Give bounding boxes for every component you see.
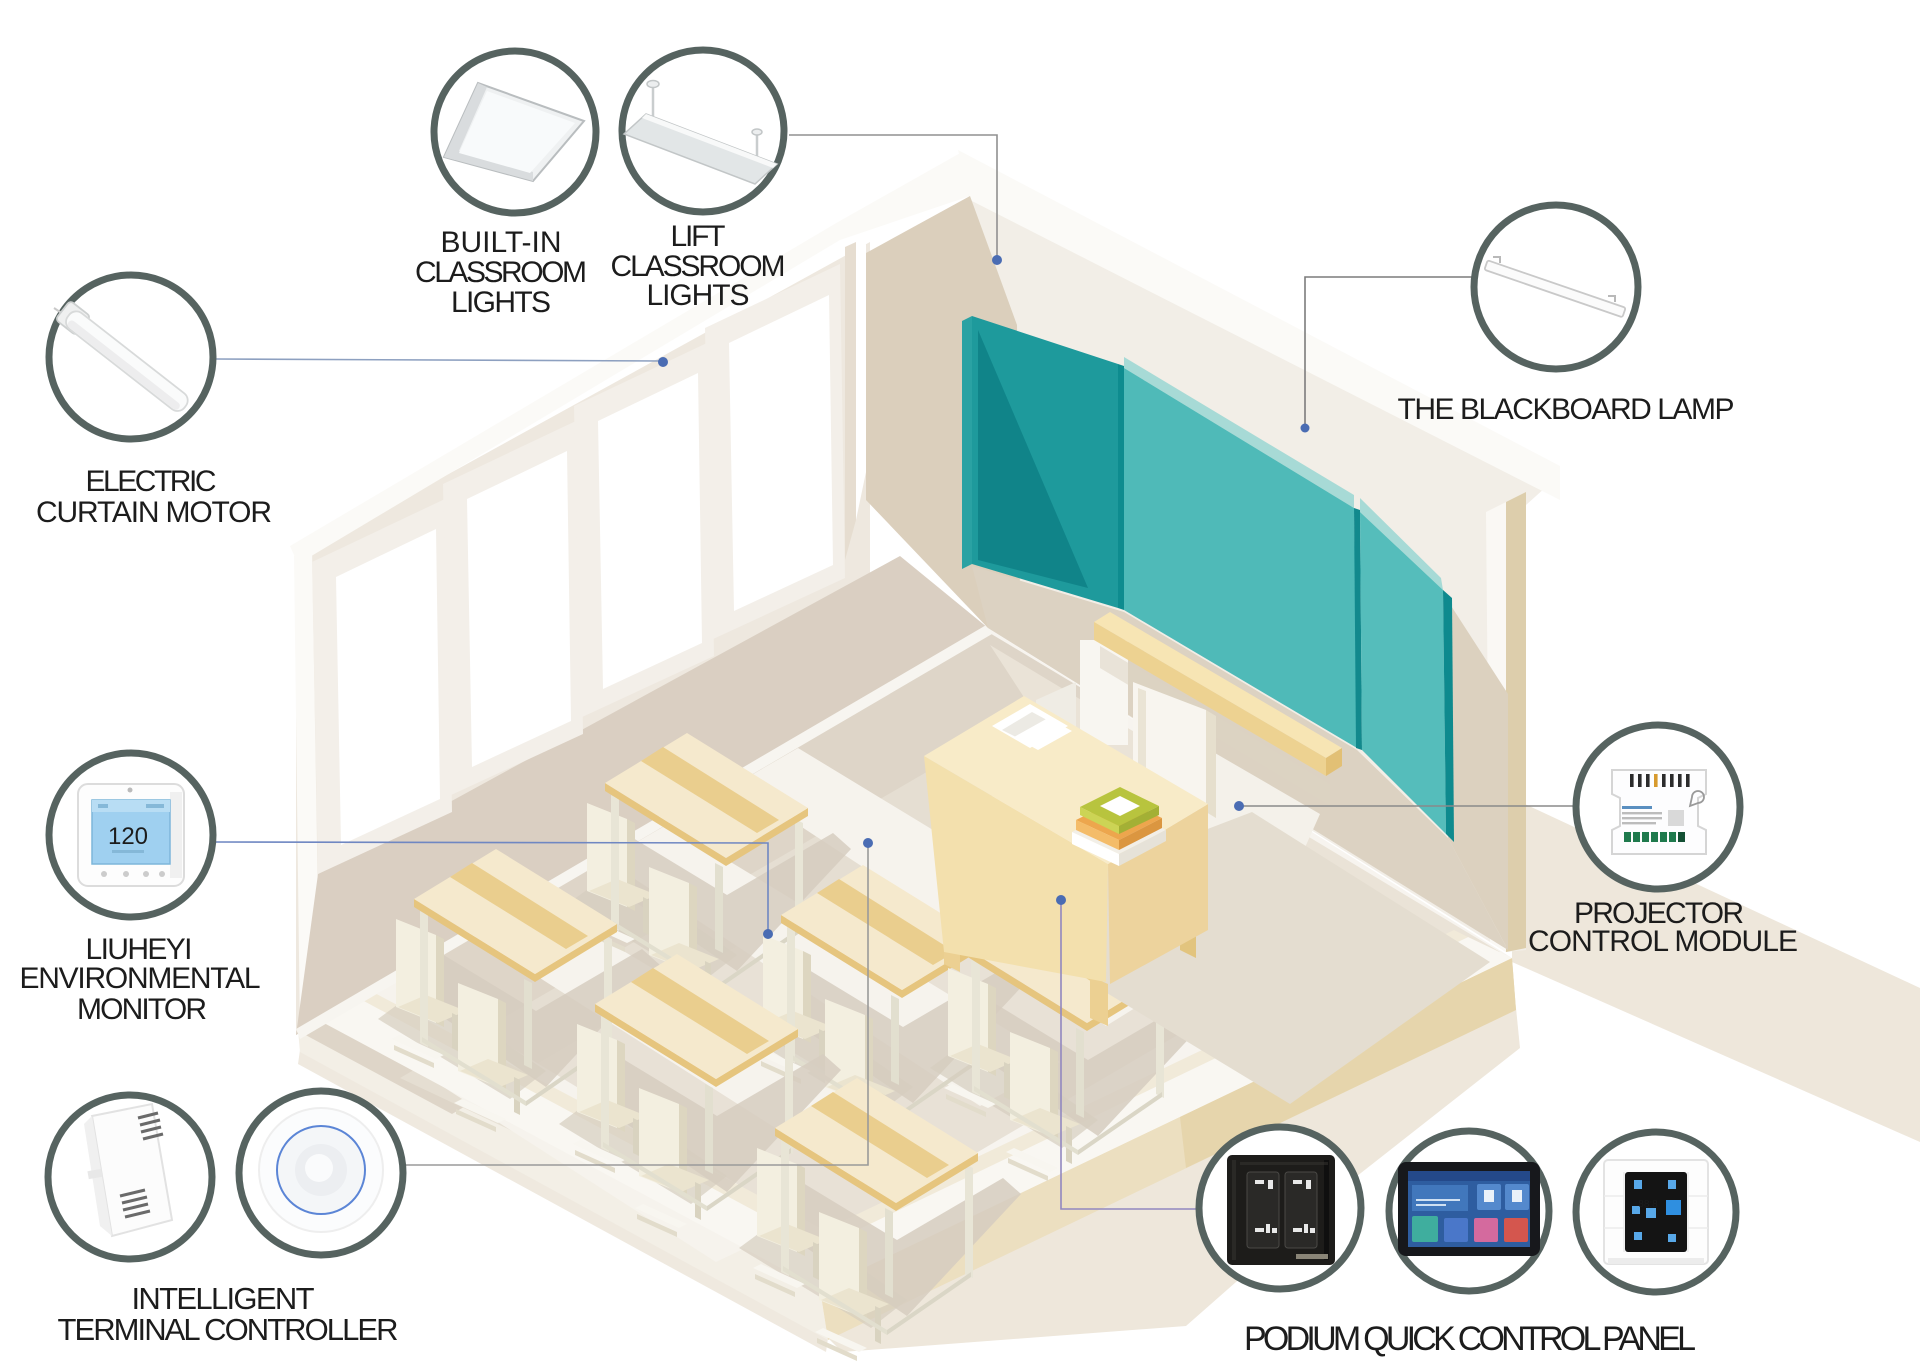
svg-text:THE BLACKBOARD LAMP: THE BLACKBOARD LAMP: [1398, 393, 1735, 426]
svg-text:BUILT-IN: BUILT-IN: [441, 226, 562, 259]
svg-text:ELECTRIC: ELECTRIC: [86, 465, 217, 498]
svg-text:120: 120: [108, 823, 148, 850]
svg-text:PODIUM QUICK CONTROL PANEL: PODIUM QUICK CONTROL PANEL: [1244, 1320, 1696, 1358]
svg-text:ENVIRONMENTAL: ENVIRONMENTAL: [20, 962, 261, 995]
svg-text:CLASSROOM: CLASSROOM: [415, 256, 587, 289]
svg-text:CONTROL MODULE: CONTROL MODULE: [1528, 925, 1798, 958]
svg-text:LIGHTS: LIGHTS: [451, 286, 551, 319]
svg-text:CURTAIN MOTOR: CURTAIN MOTOR: [36, 496, 272, 529]
svg-text:INTELLIGENT: INTELLIGENT: [132, 1281, 315, 1316]
svg-text:LIGHTS: LIGHTS: [647, 279, 750, 312]
svg-text:88:8: 88:8: [1638, 1199, 1658, 1210]
svg-text:LIFT: LIFT: [671, 220, 726, 253]
svg-text:TERMINAL CONTROLLER: TERMINAL CONTROLLER: [58, 1312, 399, 1347]
svg-text:MONITOR: MONITOR: [77, 993, 207, 1026]
